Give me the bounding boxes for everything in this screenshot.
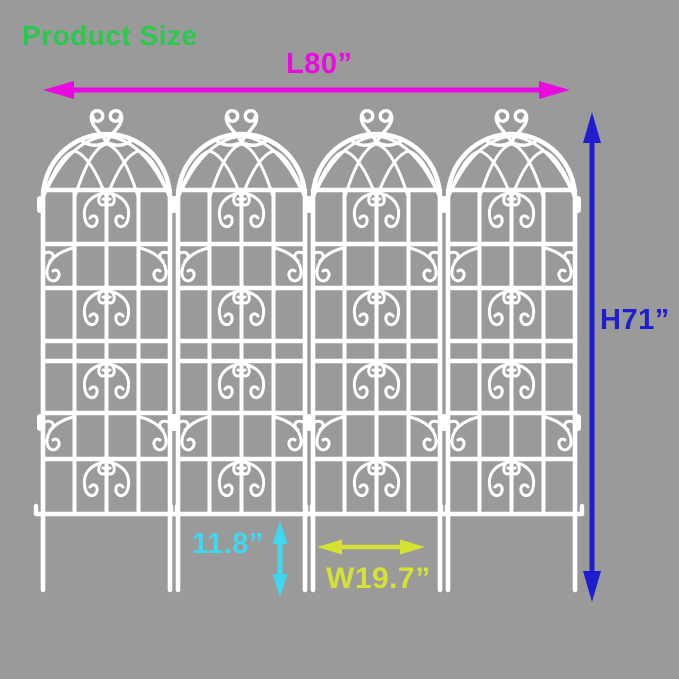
height-arrow (583, 112, 601, 602)
height-arrow-head-bottom (583, 571, 601, 602)
trellis-panels (36, 111, 582, 590)
trellis-panel-3 (306, 111, 447, 590)
width-dimension-label: W19.7” (326, 562, 431, 596)
trellis-panel-4 (441, 111, 582, 590)
trellis-panel-1 (36, 111, 177, 590)
width-arrow (317, 540, 425, 555)
length-arrow (43, 81, 570, 99)
leg-height-dimension-label: 11.8” (192, 528, 264, 561)
leg-height-arrow (273, 521, 288, 597)
product-size-diagram: Product Size L80” H71” 11.8” W19.7” (0, 0, 679, 679)
length-dimension-label: L80” (286, 48, 352, 81)
length-arrow-head-left (43, 81, 74, 99)
height-dimension-label: H71” (600, 304, 670, 337)
width-arrow-head-right (400, 540, 425, 555)
leg-height-arrow-head-bottom (273, 574, 288, 597)
width-arrow-head-left (317, 540, 342, 555)
page-title: Product Size (22, 20, 198, 52)
height-arrow-head-top (583, 112, 601, 143)
leg-height-arrow-head-top (273, 521, 288, 544)
trellis-panel-2 (171, 111, 312, 590)
length-arrow-head-right (539, 81, 570, 99)
